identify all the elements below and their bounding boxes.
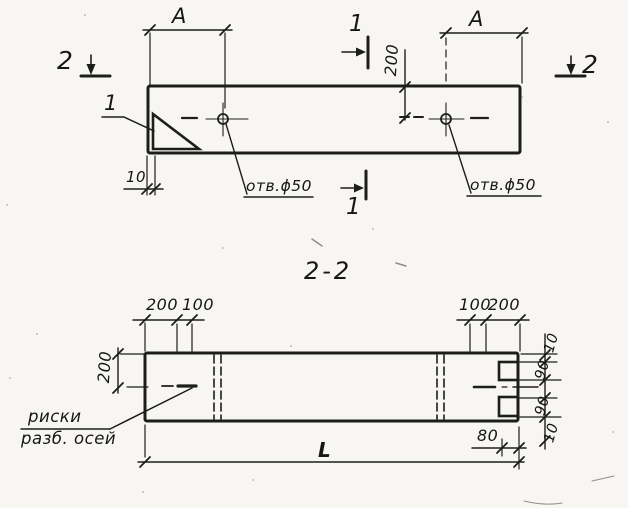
scan-artifacts	[312, 239, 614, 504]
hole-label-left: отв.ϕ50	[246, 179, 312, 195]
scan-mark	[396, 263, 406, 266]
scan-mark	[312, 239, 322, 246]
detail-callout-label: 1	[104, 93, 118, 114]
scan-mark	[592, 476, 614, 481]
dim-label-a-right: A	[469, 9, 484, 30]
dim-label-tr-200: 200	[488, 297, 520, 313]
speck	[36, 333, 38, 335]
section-label-2-left: 2	[57, 48, 73, 73]
plan-view	[81, 25, 585, 199]
scan-mark	[524, 501, 562, 504]
axes-note-line2: разб. осей	[21, 431, 116, 448]
corner-detail-triangle	[153, 114, 199, 149]
dim-label-tr-100: 100	[459, 297, 491, 313]
dim-label-a-left: A	[172, 6, 187, 27]
speck	[290, 345, 292, 347]
leader-line	[226, 124, 247, 194]
speck	[6, 204, 8, 206]
speck	[84, 14, 86, 16]
speck	[372, 228, 374, 230]
speck	[607, 121, 609, 123]
notch-upper	[499, 362, 518, 380]
section-arrow-head	[354, 184, 364, 193]
axes-note-line1: риски	[28, 409, 81, 426]
section-arrow-head	[87, 64, 96, 75]
speck	[252, 479, 254, 481]
speck	[521, 96, 523, 98]
speck	[9, 377, 11, 379]
drawing-sheet: A A 1 1 2 2 1 200 отв.ϕ50 отв.ϕ50 10 2-2…	[0, 0, 628, 508]
hole-label-right: отв.ϕ50	[470, 178, 536, 194]
speck	[142, 491, 144, 493]
dim-label-tl-100: 100	[182, 297, 214, 313]
dim-label-length: L	[318, 440, 331, 460]
speck	[612, 431, 614, 433]
leader-line	[110, 388, 192, 429]
dim-label-200-plan: 200	[383, 43, 401, 76]
dim-label-tl-200: 200	[146, 297, 178, 313]
leader-line	[449, 125, 471, 193]
section-label-2-right: 2	[582, 52, 598, 77]
section-label-1-bottom: 1	[346, 196, 361, 219]
dim-label-height-200: 200	[96, 350, 114, 383]
speck	[222, 247, 224, 249]
beam-section-outline	[145, 353, 518, 421]
section-title: 2-2	[304, 259, 352, 283]
dim-label-80: 80	[477, 428, 498, 444]
section-arrow-head	[356, 48, 366, 57]
section-arrow-head	[567, 64, 576, 75]
notch-lower	[499, 397, 518, 416]
section-label-1-top: 1	[349, 13, 364, 36]
dim-label-10: 10	[126, 170, 146, 185]
